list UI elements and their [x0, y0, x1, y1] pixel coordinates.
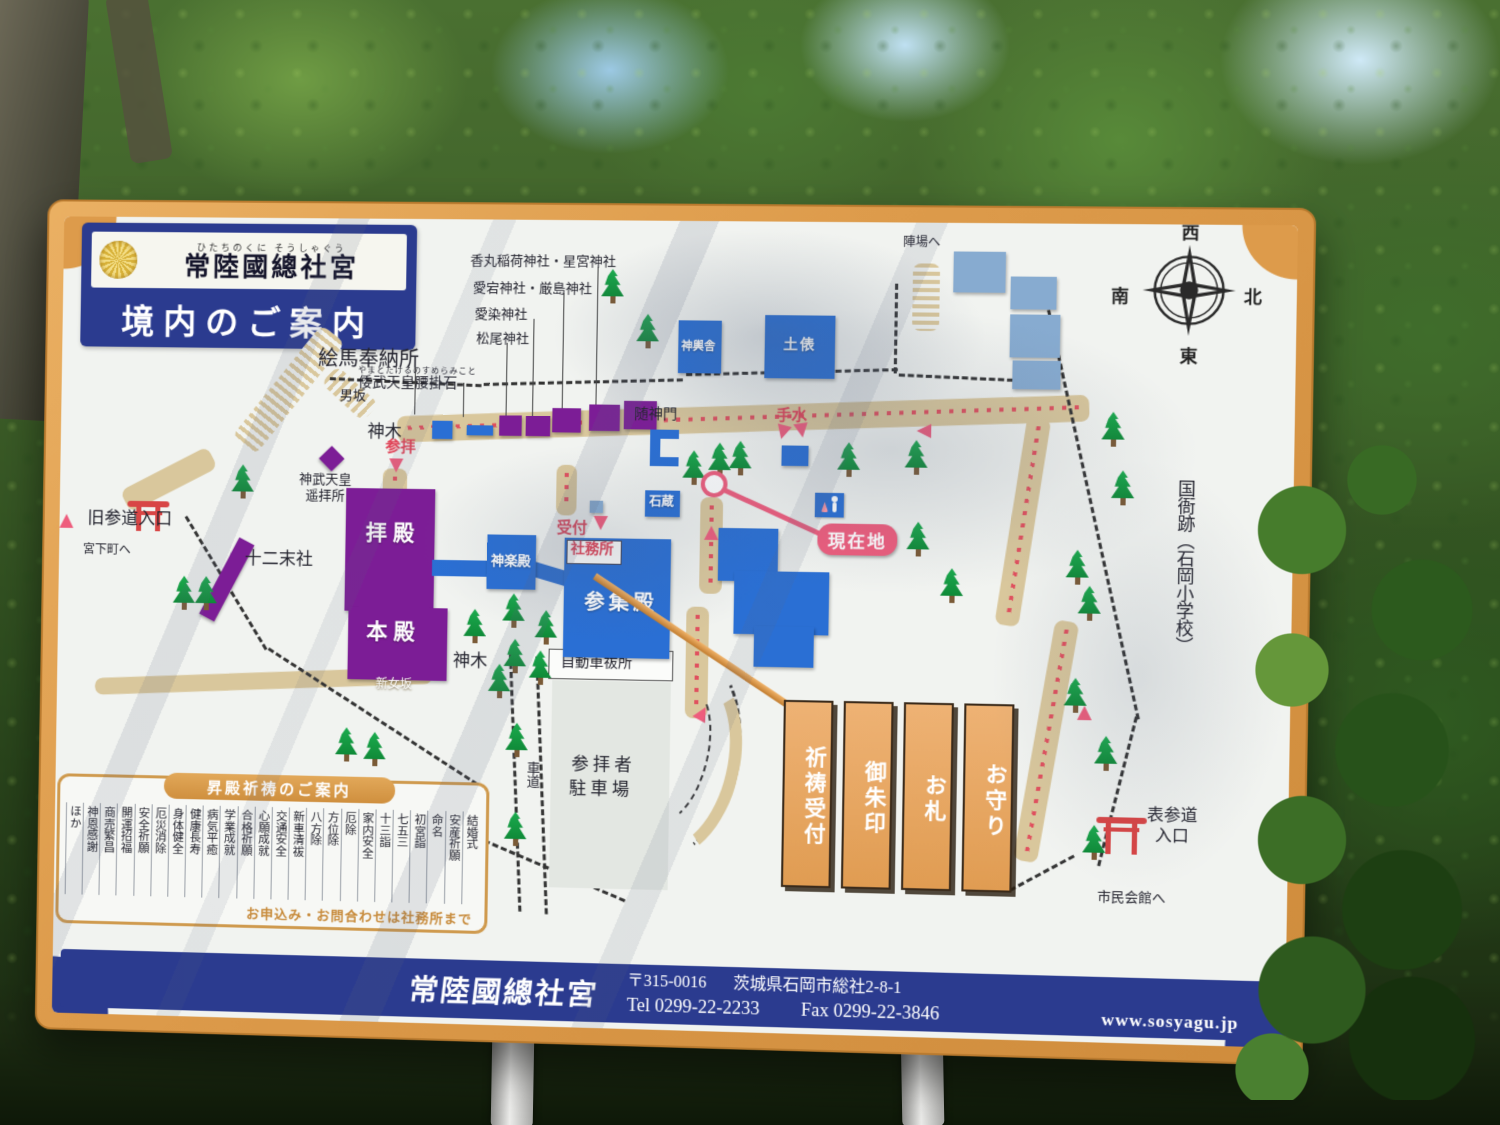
tree-icon: [501, 593, 526, 628]
sanpai-label: 参拝: [385, 438, 416, 457]
tree-icon: [728, 441, 753, 476]
parking-label: 駐車場: [569, 778, 634, 800]
prayer-item: 方位除: [322, 808, 341, 901]
route-arrow: [917, 424, 932, 438]
prayer-item: 交通安全: [270, 807, 289, 900]
foreground-leaves: [1232, 420, 1500, 1100]
sub-shrine-label: 香丸稲荷神社・星宮神社: [470, 253, 616, 270]
website-url: www.sosyagu.jp: [1101, 1010, 1238, 1034]
tree-icon: [1077, 586, 1103, 621]
shinonnazaka-label: 新女坂: [375, 677, 412, 692]
shrine-name: 常陸國總社宮: [184, 253, 359, 282]
shamusho-label: 社務所: [571, 542, 614, 560]
sub-shrine-building: [552, 408, 581, 433]
compass-west: 西: [1181, 218, 1199, 244]
sub-shrine-label: 愛宕神社・厳島神社: [473, 280, 592, 297]
small-blue-building: [432, 421, 453, 439]
tree-icon: [462, 609, 487, 644]
kagura-den-label: 神楽殿: [491, 553, 531, 569]
prayer-item: 身体健全: [167, 805, 186, 897]
route-arrow: [389, 458, 403, 472]
tree-icon: [836, 442, 861, 477]
tree-icon: [635, 314, 660, 349]
jinmu-yohaisho-label: 神武天皇遥拝所: [296, 471, 355, 503]
route-arrow: [59, 514, 73, 528]
zuishinmon-label: 随神門: [634, 407, 677, 425]
compass-east: 東: [1179, 342, 1197, 368]
kokuga-ruins-label: 国衙跡（石岡小学校）: [1169, 479, 1195, 736]
prayer-item: 家内安全: [357, 809, 376, 902]
boundary-dash: [899, 373, 1014, 381]
compass-north: 北: [1244, 283, 1262, 309]
postal-code: 〒315-0016: [627, 972, 707, 991]
prayer-item: 安全祈願: [133, 804, 152, 896]
sub-shrine-building: [526, 416, 551, 437]
tree-icon: [903, 440, 929, 475]
prayer-list: 結婚式安産祈願命名初宮詣七五三十三詣家内安全厄除方位除八方除新車清祓交通安全心願…: [65, 802, 480, 904]
tree-icon: [194, 576, 219, 610]
service-banner: お守り: [961, 703, 1014, 892]
haiden-label: 拝殿: [366, 520, 421, 546]
shrine-crest-icon: [99, 241, 137, 279]
prayer-item: 心願成就: [253, 807, 272, 900]
boundary-dash: [894, 284, 899, 374]
callout-line: [595, 267, 598, 407]
omote-sando-label: 表参道: [1147, 806, 1198, 827]
mikoshiya-label: 神輿舎: [681, 341, 715, 355]
honden-label: 本殿: [366, 619, 421, 645]
torii-icon: [1100, 817, 1143, 855]
miyashita-label: 宮下町へ: [83, 542, 131, 557]
tree-icon: [362, 732, 387, 767]
shrine-logo: ひたちのくに そうしゃぐう 常陸國總社宮: [91, 232, 407, 291]
callout-line: [505, 343, 507, 418]
map-title: 境内のご案内: [90, 295, 406, 346]
reception-stub: [556, 465, 577, 516]
title-block: ひたちのくに そうしゃぐう 常陸國總社宮 境内のご案内: [80, 223, 417, 350]
tree-icon: [528, 650, 553, 685]
tree-icon: [1110, 470, 1136, 505]
photo-scene: ひたちのくに そうしゃぐう 常陸國總社宮 境内のご案内 自動車祓所参拝者駐車場車…: [0, 0, 1500, 1125]
east-path-lower: [1013, 619, 1080, 863]
reception-label: 受付: [557, 519, 588, 538]
prayer-item: 商売繁昌: [99, 803, 118, 895]
tree-icon: [939, 568, 965, 603]
prayer-item: 健康長寿: [184, 805, 203, 898]
tree-icon: [533, 610, 558, 645]
callout-line: [532, 319, 535, 418]
parking-label: 参拝者: [571, 754, 636, 776]
route-arrow: [593, 516, 608, 530]
tree-icon: [334, 727, 359, 762]
prayer-item: 七五三: [391, 810, 410, 903]
otokozaka-label: 男坂: [340, 387, 366, 403]
corridor: [432, 560, 491, 577]
prayer-item: 八方除: [305, 808, 324, 901]
tree-icon: [231, 464, 256, 498]
telephone: Tel 0299-22-2233: [627, 994, 760, 1018]
junimassha-label: 十二末社: [244, 549, 313, 571]
sub-shrine-building: [499, 415, 522, 435]
prayer-item: 結婚式: [461, 811, 480, 904]
shrine-map-signboard: ひたちのくに そうしゃぐう 常陸國總社宮 境内のご案内 自動車祓所参拝者駐車場車…: [35, 199, 1317, 1066]
sacred-tree-label: 神木: [453, 651, 488, 672]
stone-label: やまとたけるのすめらみこと倭武天皇腰掛石: [358, 365, 477, 393]
service-banner: 祈祷受付: [781, 700, 834, 888]
yohaisho-building: [319, 446, 345, 472]
prayer-item: 合格祈願: [236, 806, 255, 899]
current-location-badge: 現在地: [817, 523, 897, 556]
sub-shrine-label: 松尾神社: [476, 330, 529, 346]
boundary-dash: [484, 378, 683, 386]
prayer-item: ほか: [65, 802, 84, 894]
omote-sando-label: 入口: [1155, 826, 1189, 846]
callout-line: [562, 293, 565, 410]
compass-south: 南: [1111, 281, 1129, 307]
corner-ornament: [1236, 225, 1298, 285]
prayer-box-footer: お申込み・お問合わせは社務所まで: [246, 903, 472, 928]
sub-shrine-label: 愛染神社: [474, 306, 527, 322]
prayer-box-title: 昇殿祈祷のご案内: [164, 773, 396, 804]
chozu-basin: [781, 445, 808, 466]
prayer-item: 神恩感謝: [82, 803, 101, 895]
ishigura-label: 石蔵: [649, 494, 674, 509]
tree-icon: [1065, 550, 1091, 585]
prayer-item: 病気平癒: [201, 805, 220, 898]
prayer-info-box: 昇殿祈祷のご案内 結婚式安産祈願命名初宮詣七五三十三詣家内安全厄除方位除八方除新…: [55, 773, 489, 934]
lightblue-building: [1012, 360, 1061, 389]
prayer-item: 安産祈願: [444, 811, 463, 904]
address-band: 常陸國總社宮 〒315-0016茨城県石岡市総社2-8-1 Tel 0299-2…: [60, 949, 1277, 1042]
lightblue-building: [953, 251, 1006, 292]
map-panel: ひたちのくに そうしゃぐう 常陸國總社宮 境内のご案内 自動車祓所参拝者駐車場車…: [52, 216, 1298, 1048]
east-path-upper: [994, 416, 1051, 627]
route-arrow: [774, 424, 792, 441]
dohyo-label: 土俵: [783, 338, 816, 355]
prayer-item: 開運招福: [116, 803, 135, 895]
tree-icon: [504, 723, 529, 758]
tree-icon: [487, 664, 512, 699]
service-banners: 祈祷受付御朱印お札お守り: [781, 700, 1015, 893]
tree-icon: [172, 576, 197, 610]
compass-rose: 西 東 南 北: [1138, 241, 1241, 341]
jinba-steps: [912, 263, 940, 331]
prayer-item: 厄災消除: [150, 804, 169, 896]
prayer-item: 初宮詣: [409, 810, 428, 903]
roadway-label: 車道: [524, 761, 540, 788]
tree-icon: [503, 811, 528, 846]
prayer-item: 十三詣: [374, 809, 393, 902]
haiden-building: [344, 488, 435, 612]
small-lightblue-building: [590, 501, 603, 513]
compass-icon: [1138, 241, 1241, 341]
building-join: [359, 601, 430, 614]
chozu-label: 手水: [776, 407, 807, 426]
service-banner: お札: [901, 702, 954, 891]
service-banner: 御朱印: [841, 701, 894, 890]
prayer-item: 新車清祓: [288, 807, 307, 900]
zuishinmon-gate: [650, 430, 679, 467]
sub-shrine-building: [589, 404, 620, 431]
lightblue-building: [1010, 314, 1061, 358]
footer-shrine-name: 常陸國總社宮: [407, 966, 601, 1014]
current-location-circle: [701, 471, 728, 498]
tree-icon: [905, 522, 931, 557]
annex-building: [753, 626, 814, 668]
tree-icon: [600, 269, 625, 304]
route-arrow: [704, 526, 719, 540]
fax: Fax 0299-22-3846: [801, 999, 940, 1023]
jinba-label: 陣場へ: [903, 235, 941, 250]
tree-icon: [1093, 736, 1119, 771]
footer-contact: 〒315-0016茨城県石岡市総社2-8-1 Tel 0299-22-2233F…: [627, 970, 982, 1027]
prayer-item: 厄除: [339, 809, 358, 902]
address: 茨城県石岡市総社2-8-1: [733, 975, 901, 997]
prayer-item: 学業成就: [219, 806, 238, 899]
route-arrow: [1077, 706, 1092, 721]
old-approach-label: 旧参道入口: [87, 508, 172, 530]
lightblue-building: [1010, 276, 1057, 309]
restroom-icon: [815, 493, 844, 518]
tree-icon: [1100, 412, 1126, 447]
prayer-item: 命名: [426, 811, 445, 904]
small-blue-building: [467, 425, 494, 435]
civic-hall-label: 市民会館へ: [1097, 889, 1166, 907]
